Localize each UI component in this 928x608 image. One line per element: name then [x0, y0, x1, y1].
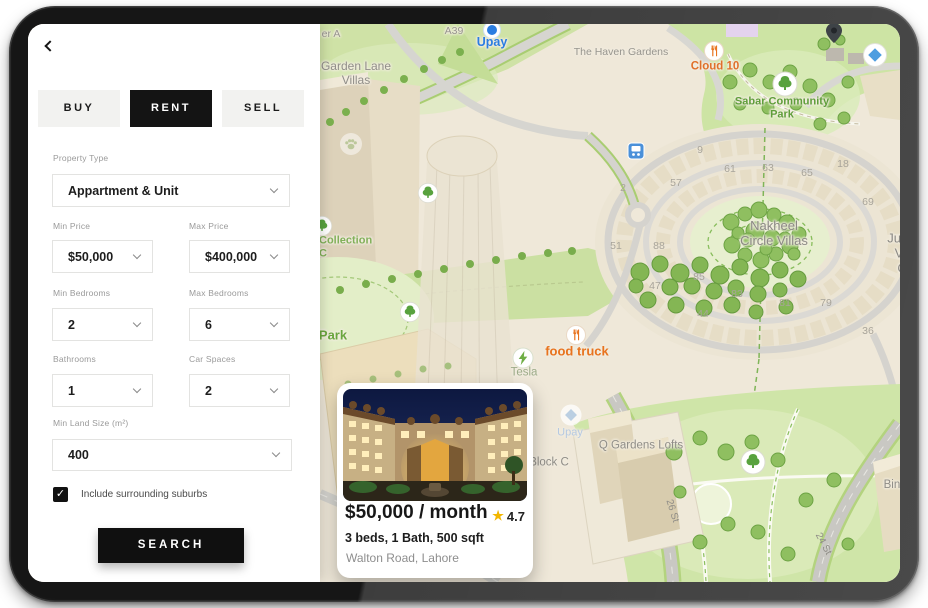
upay-pin-icon[interactable] — [483, 24, 501, 39]
tablet-frame: er AA39UpayGarden Lane VillasThe Haven G… — [9, 6, 919, 602]
chevron-down-icon — [133, 318, 141, 326]
listing-type-tabs: BUY RENT SELL — [38, 90, 304, 127]
poi-upay[interactable]: Upay — [477, 35, 508, 49]
restaurant-icon-cloud10[interactable] — [704, 41, 724, 61]
max-bedrooms-label: Max Bedrooms — [189, 288, 249, 298]
tab-sell[interactable]: SELL — [222, 90, 304, 127]
property-photo — [343, 389, 527, 501]
car-spaces-label: Car Spaces — [189, 354, 235, 364]
min-bedrooms-value: 2 — [68, 318, 75, 332]
ev-charger-icon-tesla[interactable] — [513, 348, 534, 369]
house-number: 47 — [649, 280, 661, 292]
min-land-size-select[interactable]: 400 — [52, 439, 292, 471]
include-suburbs-label: Include surrounding suburbs — [81, 489, 207, 500]
poi-cloud-10[interactable]: Cloud 10 — [691, 60, 740, 73]
back-button[interactable] — [40, 38, 58, 56]
page: er AA39UpayGarden Lane VillasThe Haven G… — [0, 0, 928, 608]
house-number: 9 — [697, 144, 703, 156]
area-block-c: Block C — [529, 456, 569, 469]
house-number: 2 — [620, 182, 626, 194]
max-bedrooms-value: 6 — [205, 318, 212, 332]
park-tree-icon-b[interactable] — [400, 302, 421, 323]
house-number: 63 — [762, 162, 774, 174]
house-number: 18 — [837, 158, 849, 170]
tab-rent[interactable]: RENT — [130, 90, 212, 127]
search-button[interactable]: SEARCH — [98, 528, 244, 563]
bus-stop-icon[interactable] — [628, 143, 645, 160]
price: $50,000 / month — [345, 502, 488, 524]
min-bedrooms-select[interactable]: 2 — [52, 308, 153, 341]
chevron-down-icon — [133, 250, 141, 258]
max-price-label: Max Price — [189, 221, 229, 231]
chevron-down-icon — [133, 384, 141, 392]
map-labels-layer: er AA39UpayGarden Lane VillasThe Haven G… — [28, 24, 900, 582]
property-type-value: Appartment & Unit — [68, 184, 178, 198]
road-label-a39: A39 — [445, 25, 464, 37]
chevron-down-icon — [270, 384, 278, 392]
house-number: 36 — [862, 325, 874, 337]
chevron-down-icon — [270, 318, 278, 326]
star-icon: ★ — [492, 508, 504, 524]
bathrooms-value: 1 — [68, 384, 75, 398]
property-details: 3 beds, 1 Bath, 500 sqft — [345, 531, 484, 545]
park-tree-icon-sabar[interactable] — [772, 71, 798, 97]
property-card[interactable]: $50,000 / month ★ 4.7 3 beds, 1 Bath, 50… — [337, 383, 533, 578]
car-spaces-value: 2 — [205, 384, 212, 398]
rating-value: 4.7 — [507, 509, 525, 524]
max-bedrooms-select[interactable]: 6 — [189, 308, 290, 341]
poi-sabar-community-park[interactable]: Sabar Community Park — [735, 95, 829, 120]
house-number: 65 — [801, 167, 813, 179]
rating: ★ 4.7 — [492, 508, 525, 524]
poi-diamond-icon[interactable] — [863, 43, 887, 67]
house-number: 83 — [731, 288, 743, 300]
park-tree-icon-a[interactable] — [418, 183, 439, 204]
poi-collection[interactable]: Collection C — [319, 234, 372, 259]
road-label-er-a: er A — [322, 28, 341, 40]
min-land-size-value: 400 — [68, 448, 89, 462]
paw-icon — [339, 132, 363, 156]
house-number: 85 — [693, 271, 705, 283]
area-q-gardens-lofts: Q Gardens Lofts — [599, 439, 683, 452]
min-price-value: $50,000 — [68, 250, 113, 264]
poi-tesla[interactable]: Tesla — [511, 366, 538, 379]
poi-collection-icon[interactable] — [312, 216, 333, 237]
house-number: 61 — [724, 163, 736, 175]
house-number: 51 — [610, 240, 622, 252]
area-jumeirah-village-circle: Jumeirah Village Circle — [887, 232, 900, 277]
chevron-down-icon — [270, 250, 278, 258]
park-tree-icon-south[interactable] — [740, 449, 766, 475]
bathrooms-label: Bathrooms — [53, 354, 96, 364]
house-number: 81 — [779, 297, 791, 309]
poi-upay-2[interactable]: Upay — [557, 427, 583, 440]
include-suburbs-checkbox[interactable]: ✓ — [53, 487, 68, 502]
min-land-size-label: Min Land Size (m²) — [53, 418, 128, 428]
screen: er AA39UpayGarden Lane VillasThe Haven G… — [28, 24, 900, 582]
house-number: 79 — [820, 297, 832, 309]
house-number: 57 — [670, 177, 682, 189]
max-price-value: $400,000 — [205, 250, 257, 264]
area-the-haven-gardens: The Haven Gardens — [574, 46, 669, 58]
min-price-label: Min Price — [53, 221, 90, 231]
min-price-select[interactable]: $50,000 — [52, 240, 153, 273]
include-suburbs-row[interactable]: ✓ Include surrounding suburbs — [53, 487, 207, 502]
area-nakheel-circle-villas: Nakheel Circle Villas — [740, 219, 808, 249]
road-label-24-st: 24 St — [812, 531, 833, 557]
tab-buy[interactable]: BUY — [38, 90, 120, 127]
property-type-select[interactable]: Appartment & Unit — [52, 174, 290, 207]
poi-park[interactable]: Park — [319, 329, 347, 344]
filter-panel: BUY RENT SELL Property Type Appartment &… — [28, 24, 320, 582]
chevron-left-icon — [44, 40, 55, 51]
map-pin-icon[interactable] — [826, 24, 842, 43]
road-label-26-st: 26 St — [663, 498, 681, 524]
property-address: Walton Road, Lahore — [346, 551, 459, 565]
area-garden-lane-villas: Garden Lane Villas — [321, 60, 391, 88]
upay-faded-icon[interactable] — [560, 404, 582, 426]
chevron-down-icon — [272, 449, 280, 457]
bathrooms-select[interactable]: 1 — [52, 374, 153, 407]
car-spaces-select[interactable]: 2 — [189, 374, 290, 407]
restaurant-icon-food-truck[interactable] — [566, 325, 586, 345]
property-type-label: Property Type — [53, 153, 108, 163]
house-number: 69 — [862, 196, 874, 208]
area-binghatti: Binghatti C — [884, 479, 900, 505]
chevron-down-icon — [270, 184, 278, 192]
poi-food-truck[interactable]: food truck — [545, 345, 609, 360]
house-number: 88 — [653, 240, 665, 252]
house-number: 44 — [697, 308, 709, 320]
map-canvas[interactable] — [28, 24, 900, 582]
min-bedrooms-label: Min Bedrooms — [53, 288, 110, 298]
max-price-select[interactable]: $400,000 — [189, 240, 290, 273]
